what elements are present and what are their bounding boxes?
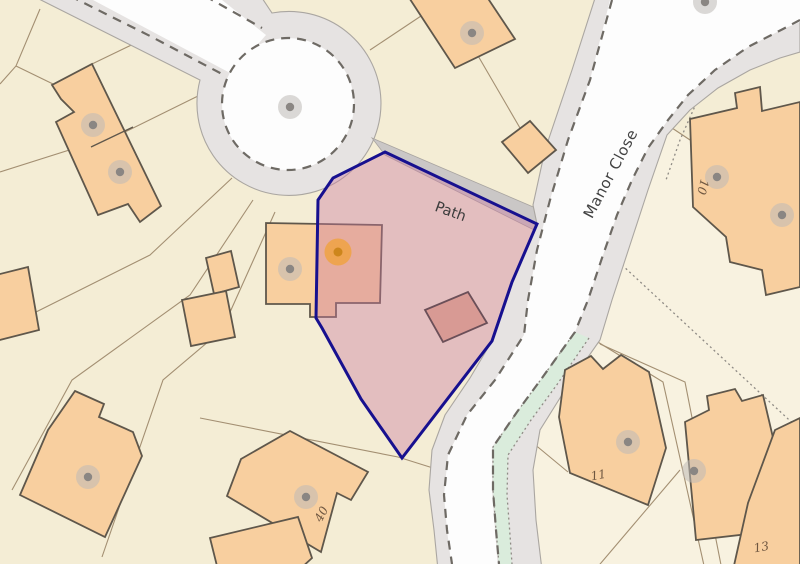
house-number-13: 13	[753, 539, 771, 556]
house-number-11: 11	[590, 467, 607, 483]
house-marker	[76, 465, 100, 489]
house-marker	[294, 485, 318, 509]
outbuilding-small-2	[182, 291, 235, 346]
house-marker	[616, 430, 640, 454]
house-marker	[278, 257, 302, 281]
house-marker	[682, 459, 706, 483]
map-canvas: Path Manor Close 10 11 13 40	[0, 0, 800, 564]
house-marker	[108, 160, 132, 184]
roundabout-marker	[278, 95, 302, 119]
house-marker	[770, 203, 794, 227]
house-marker	[460, 21, 484, 45]
map-view[interactable]: Path Manor Close 10 11 13 40	[0, 0, 800, 564]
selected-property-marker[interactable]	[325, 239, 352, 266]
house-marker	[81, 113, 105, 137]
